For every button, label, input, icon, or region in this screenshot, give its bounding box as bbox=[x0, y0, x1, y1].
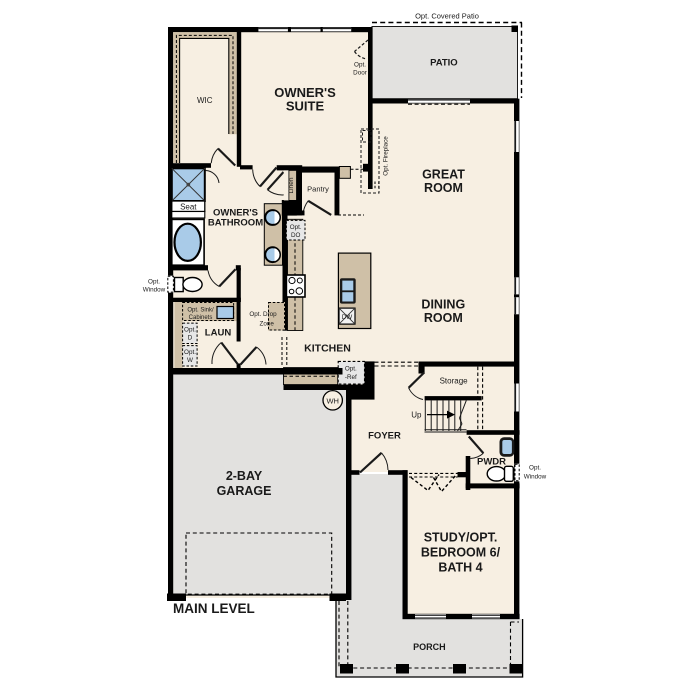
svg-text:FOYER: FOYER bbox=[368, 431, 401, 442]
svg-text:GARAGE: GARAGE bbox=[217, 484, 272, 498]
svg-text:Opt.: Opt. bbox=[354, 62, 366, 69]
svg-text:WH: WH bbox=[326, 396, 339, 405]
svg-text:Opt.: Opt. bbox=[148, 279, 160, 286]
svg-text:BEDROOM 6/: BEDROOM 6/ bbox=[421, 546, 501, 560]
svg-text:Opt.: Opt. bbox=[290, 224, 302, 231]
svg-text:SUITE: SUITE bbox=[286, 99, 325, 114]
svg-text:2-BAY: 2-BAY bbox=[226, 469, 263, 483]
svg-text:PATIO: PATIO bbox=[430, 58, 458, 69]
svg-text:Zone: Zone bbox=[260, 321, 275, 328]
svg-text:PORCH: PORCH bbox=[413, 642, 446, 652]
svg-text:Opt. Drop: Opt. Drop bbox=[249, 311, 277, 318]
svg-text:Up: Up bbox=[411, 411, 422, 420]
svg-text:Opt. Fireplace: Opt. Fireplace bbox=[383, 136, 390, 176]
svg-text:Pantry: Pantry bbox=[307, 185, 329, 194]
svg-text:KITCHEN: KITCHEN bbox=[304, 343, 351, 355]
svg-text:-Ref: -Ref bbox=[345, 374, 357, 381]
svg-text:PWDR: PWDR bbox=[477, 457, 506, 468]
svg-text:Opt.: Opt. bbox=[529, 465, 541, 472]
svg-text:LAUN: LAUN bbox=[205, 328, 232, 339]
svg-text:BATHROOM: BATHROOM bbox=[208, 218, 263, 229]
svg-text:Opt. Covered Patio: Opt. Covered Patio bbox=[415, 12, 479, 21]
svg-text:Linen: Linen bbox=[288, 177, 295, 193]
svg-text:BATH 4: BATH 4 bbox=[438, 561, 482, 575]
svg-text:MAIN LEVEL: MAIN LEVEL bbox=[173, 601, 255, 616]
svg-text:ROOM: ROOM bbox=[424, 181, 463, 195]
svg-text:Door: Door bbox=[353, 70, 367, 77]
svg-text:DO: DO bbox=[291, 232, 301, 239]
svg-text:Storage: Storage bbox=[440, 377, 469, 386]
svg-text:Opt.: Opt. bbox=[184, 327, 196, 334]
svg-text:W: W bbox=[187, 357, 193, 364]
svg-text:GREAT: GREAT bbox=[422, 168, 465, 182]
svg-text:Window: Window bbox=[143, 287, 166, 294]
svg-text:Opt.: Opt. bbox=[345, 366, 357, 373]
svg-text:Opt. Sink/: Opt. Sink/ bbox=[187, 308, 214, 314]
svg-text:Window: Window bbox=[524, 474, 547, 481]
svg-text:ROOM: ROOM bbox=[424, 311, 463, 325]
svg-text:Seat: Seat bbox=[180, 203, 197, 212]
svg-text:Opt.: Opt. bbox=[184, 349, 196, 356]
svg-text:WIC: WIC bbox=[197, 96, 213, 105]
svg-text:D: D bbox=[188, 335, 193, 342]
svg-text:DW: DW bbox=[342, 314, 353, 321]
svg-text:STUDY/OPT.: STUDY/OPT. bbox=[424, 531, 498, 545]
svg-text:Cabinets: Cabinets bbox=[189, 315, 213, 321]
svg-text:DINING: DINING bbox=[421, 298, 465, 312]
